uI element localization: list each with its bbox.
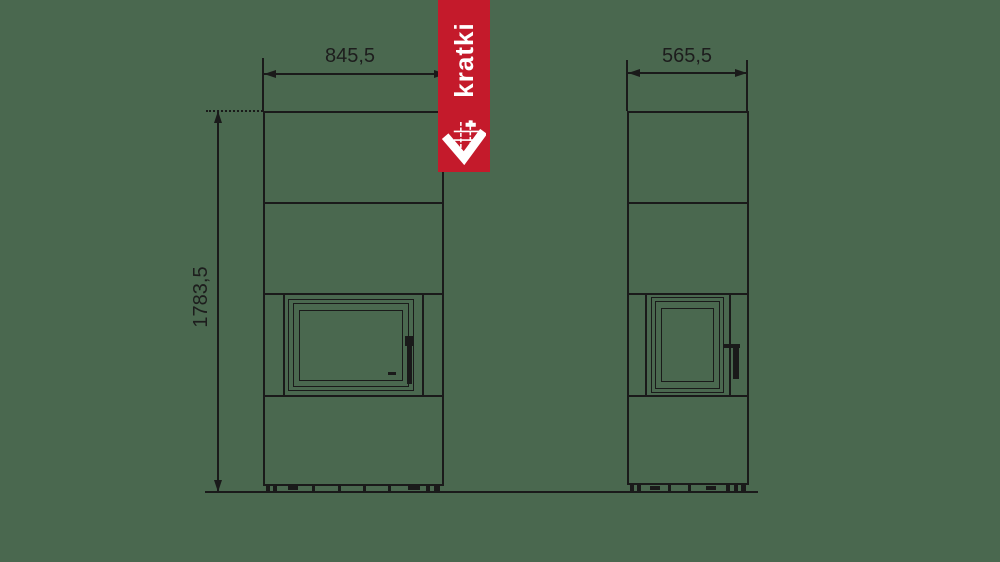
door-glass <box>299 310 403 381</box>
recess-edge-line <box>645 294 647 396</box>
dimension-line <box>627 72 748 74</box>
brand-banner: kratki <box>438 0 490 172</box>
side-width-label: 565,5 <box>647 45 727 67</box>
recess-edge-line <box>283 294 285 396</box>
front-width-label: 845,5 <box>310 45 390 67</box>
base-foot-tick <box>408 486 420 490</box>
kratki-check-grid-logo-icon <box>442 120 486 168</box>
door-handle <box>407 346 412 384</box>
dimension-line <box>263 73 446 75</box>
extension-line <box>262 58 264 111</box>
technical-drawing-canvas: 845,5 1783,5 <box>0 0 1000 562</box>
panel-joint-line <box>627 202 749 204</box>
base-foot-tick <box>706 486 716 490</box>
base-foot-tick <box>650 486 660 490</box>
door-handle <box>733 347 739 379</box>
door-handle-latch <box>405 336 413 346</box>
ground-line <box>205 491 758 493</box>
height-label: 1783,5 <box>190 257 212 337</box>
dim-arrow-right-icon <box>735 69 747 77</box>
extension-line <box>746 60 748 111</box>
brand-name: kratki <box>438 0 490 120</box>
dimension-line <box>217 111 219 492</box>
panel-joint-line <box>263 293 444 295</box>
recess-edge-line <box>422 294 424 396</box>
door-glass <box>661 308 714 382</box>
glass-brand-mark <box>388 372 396 375</box>
extension-line <box>626 60 628 111</box>
dim-arrow-left-icon <box>264 70 276 78</box>
panel-joint-line <box>263 202 444 204</box>
base-foot-tick <box>288 486 298 490</box>
panel-joint-line <box>263 395 444 397</box>
dim-arrow-left-icon <box>628 69 640 77</box>
dim-arrow-up-icon <box>214 111 222 123</box>
